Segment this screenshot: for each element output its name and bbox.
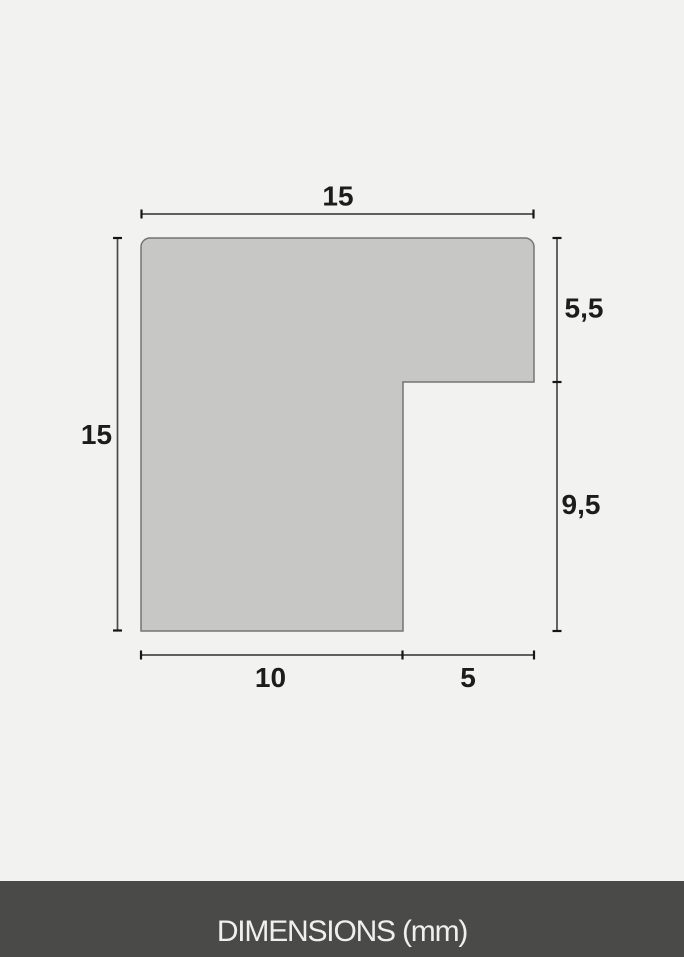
- svg-text:5,5: 5,5: [565, 293, 604, 324]
- svg-text:10: 10: [255, 662, 286, 693]
- svg-text:5: 5: [460, 662, 476, 693]
- svg-text:9,5: 9,5: [562, 489, 601, 520]
- svg-text:15: 15: [81, 419, 112, 450]
- svg-text:15: 15: [322, 181, 353, 212]
